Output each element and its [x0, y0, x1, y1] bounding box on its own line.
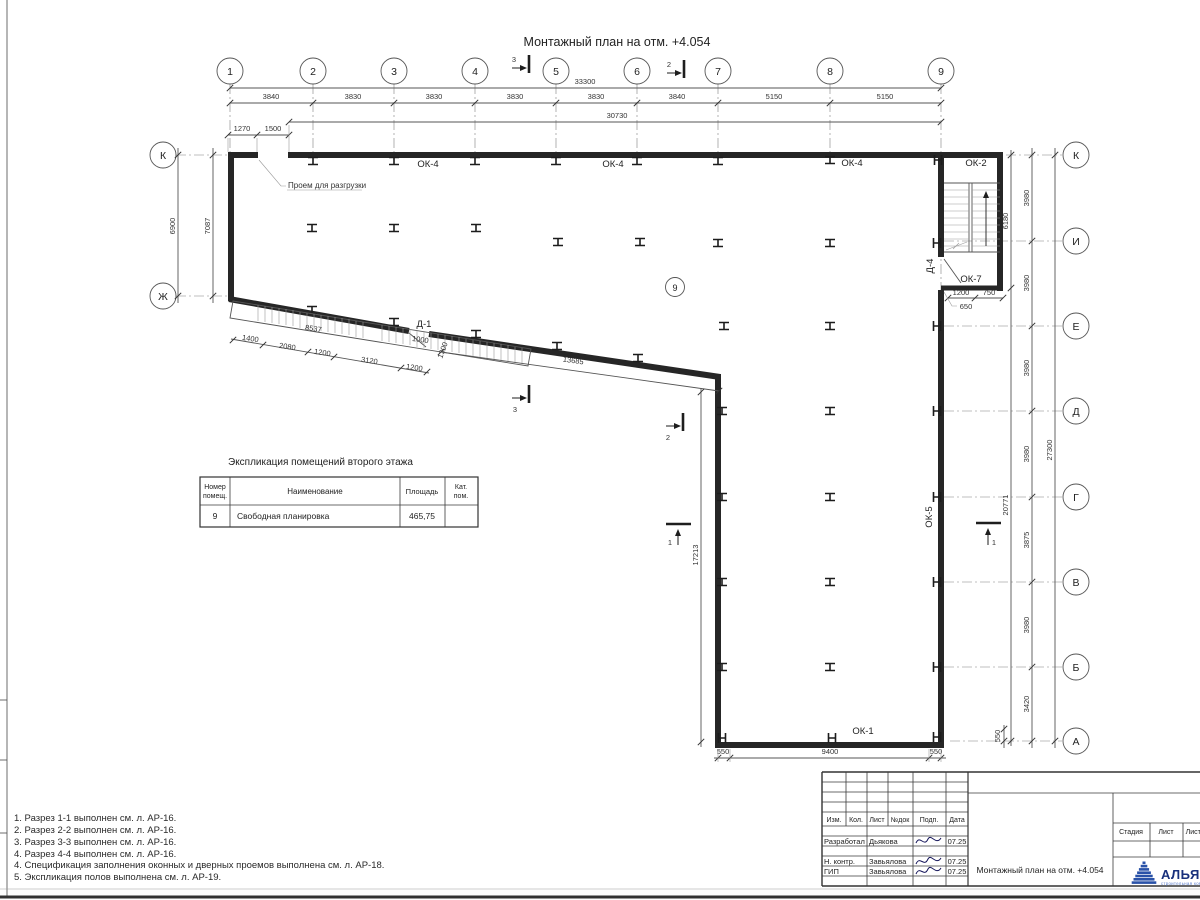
tb-col-podp: Подп. [920, 817, 939, 824]
plan-svg: Монтажный план на отм. +4.054 1 2 3 4 5 … [0, 0, 1200, 900]
section-markers: 3 2 3 2 1 1 [512, 55, 1001, 547]
dim-top-wall: 30730 [607, 111, 628, 120]
window-ok5-label: ОК-5 [924, 506, 935, 527]
dim-seg-8: 5150 [877, 92, 894, 101]
section-3-mid: 3 [513, 405, 517, 414]
left-dimensions: 6900 7087 [168, 148, 216, 303]
grid-row-G: Г [1073, 492, 1079, 504]
window-ok4-label-2: ОК-4 [602, 159, 623, 170]
dim-top-total: 33300 [575, 77, 596, 86]
dim-seg-5: 3830 [588, 92, 605, 101]
tb-date-3: 07.25 [948, 867, 967, 876]
grid-bubbles-right: К И Е Д Г В Б А [1063, 142, 1089, 754]
table-header-num-1: Номер [204, 484, 226, 491]
walls [228, 152, 1003, 748]
dim-bottom-9400: 9400 [822, 747, 839, 756]
dim-left-outer: 6900 [168, 218, 177, 235]
plan-labels: ОК-4 ОК-4 ОК-4 ОК-2 ОК-7 ОК-5 ОК-1 Д-1 Д… [259, 158, 987, 737]
grid-row-E: Е [1072, 321, 1079, 333]
dim-stair-750: 750 [983, 288, 996, 297]
grid-col-7: 7 [715, 66, 721, 78]
grid-col-5: 5 [553, 66, 559, 78]
signature-3 [916, 867, 941, 874]
table-header-num-2: помещ. [203, 493, 227, 500]
room-schedule: Экспликация помещений второго этажа Номе… [200, 457, 478, 527]
tb-col-kol: Кол. [849, 817, 863, 824]
note-2: 2. Разрез 2-2 выполнен см. л. АР-16. [14, 825, 176, 836]
staircase [944, 183, 1000, 252]
tb-name-1: Дьякова [869, 837, 898, 846]
bottom-dimensions: 550 9400 550 [714, 747, 946, 762]
grid-col-6: 6 [634, 66, 640, 78]
grid-row-K-left: К [160, 150, 167, 162]
sheet-frame [0, 0, 1200, 897]
dim-seg-7: 5150 [766, 92, 783, 101]
signature-2 [916, 857, 941, 864]
note-1: 1. Разрез 1-1 выполнен см. л. АР-16. [14, 813, 176, 824]
column-icon [308, 158, 318, 165]
ramp: 8537 [230, 301, 531, 366]
ramp-dimensions: 1400 2080 1200 3120 1200 1000 1300 [230, 333, 450, 375]
window-ok4-label-1: ОК-4 [417, 159, 438, 170]
table-header-cat-1: Кат. [455, 484, 467, 491]
grid-col-4: 4 [472, 66, 478, 78]
table-header-name: Наименование [287, 487, 343, 496]
dim-right-inner: 20771 [1001, 495, 1010, 516]
dim-left-inner: 7087 [203, 218, 212, 235]
dim-ramp-length: 8537 [304, 323, 322, 334]
tb-stage: Стадия [1119, 829, 1143, 836]
dim-bottom-550l: 550 [717, 747, 730, 756]
tb-sheets: Листов [1186, 829, 1200, 836]
tb-col-ndok: №док [891, 817, 910, 824]
grid-row-A: А [1072, 736, 1079, 748]
dim-1270: 1270 [234, 124, 251, 133]
dim-ramp-3120: 3120 [360, 355, 378, 366]
table-row-name: Свободная планировка [237, 511, 330, 521]
dim-right-bottom-offset: 550 [993, 730, 1002, 743]
table-header-area: Площадь [406, 487, 439, 496]
drawing-title: Монтажный план на отм. +4.054 [524, 35, 711, 49]
dim-seg-6: 3840 [669, 92, 686, 101]
dim-ramp-1400: 1400 [241, 333, 259, 344]
tb-date-1: 07.25 [948, 837, 967, 846]
tb-role-1: Разработал [824, 837, 865, 846]
dim-seg-3: 3830 [426, 92, 443, 101]
drawing-sheet: Монтажный план на отм. +4.054 1 2 3 4 5 … [0, 0, 1200, 900]
grid-row-K: К [1073, 150, 1080, 162]
dim-door-1000: 1000 [411, 334, 429, 345]
title-block: Изм. Кол. Лист №док Подп. Дата Разработа… [822, 772, 1200, 886]
window-ok2-label: ОК-2 [965, 158, 986, 169]
tb-date-2: 07.25 [948, 857, 967, 866]
tb-col-data: Дата [949, 817, 965, 824]
table-header-cat-2: пом. [454, 493, 468, 500]
window-ok7-label: ОК-7 [960, 274, 981, 285]
top-dimensions: 33300 3840 3830 3830 3830 3830 3840 5150… [225, 77, 944, 152]
note-5: 4. Спецификация заполнения оконных и две… [14, 860, 384, 871]
tb-name-2: Завьялова [869, 857, 907, 866]
inner-dimensions: 13685 17213 [438, 349, 722, 747]
section-1-left: 1 [668, 538, 672, 547]
notes-block: 1. Разрез 1-1 выполнен см. л. АР-16. 2. … [14, 813, 384, 883]
grid-col-1: 1 [227, 66, 233, 78]
grid-row-D: Д [1072, 406, 1079, 418]
section-2-top: 2 [667, 60, 671, 69]
section-2-mid: 2 [666, 433, 670, 442]
dim-seg-1: 3840 [263, 92, 280, 101]
door-d1-label: Д-1 [417, 319, 432, 330]
dim-ramp-2080: 2080 [278, 341, 296, 352]
dim-bottom-550r: 550 [930, 747, 943, 756]
section-1-right: 1 [992, 538, 996, 547]
tb-name-3: Завьялова [869, 867, 907, 876]
window-ok1-label: ОК-1 [852, 726, 873, 737]
dim-seg-4: 3830 [507, 92, 524, 101]
tb-sheet: Лист [1158, 829, 1174, 836]
dim-r-seg-5: 3875 [1022, 532, 1031, 549]
company-subtitle: строительная компания [1161, 881, 1200, 886]
dim-r-seg-4: 3980 [1022, 446, 1031, 463]
tb-col-izm: Изм. [827, 817, 842, 824]
dim-seg-2: 3830 [345, 92, 362, 101]
grid-col-9: 9 [938, 66, 944, 78]
grid-row-V: В [1072, 577, 1079, 589]
opening-leader [259, 160, 286, 186]
door-d4-leaf [944, 259, 961, 283]
dim-ramp-1200a: 1200 [313, 347, 331, 358]
dim-stair-650: 650 [960, 302, 973, 311]
door-d4-label: Д-4 [925, 259, 936, 274]
note-4: 4. Разрез 4-4 выполнен см. л. АР-16. [14, 849, 176, 860]
table-row-area: 465,75 [409, 511, 435, 521]
tb-col-list: Лист [869, 817, 885, 824]
dim-vertical: 17213 [691, 545, 700, 566]
room-number: 9 [672, 283, 677, 293]
grid-row-Zh-left: Ж [158, 291, 168, 303]
dim-r-seg-7: 3420 [1022, 696, 1031, 713]
room-schedule-title: Экспликация помещений второго этажа [228, 457, 413, 468]
dim-1500: 1500 [265, 124, 282, 133]
note-3: 3. Разрез 3-3 выполнен см. л. АР-16. [14, 837, 176, 848]
grid-col-3: 3 [391, 66, 397, 78]
dim-r-seg-2: 3980 [1022, 275, 1031, 292]
grid-col-2: 2 [310, 66, 316, 78]
section-3-top: 3 [512, 55, 516, 64]
tb-doc-title: Монтажный план на отм. +4.054 [976, 865, 1103, 875]
stair-dimensions: 1200 750 650 [944, 288, 1006, 311]
company-logo-icon [1132, 862, 1157, 884]
dim-stair-1200: 1200 [953, 288, 970, 297]
dim-r-seg-6: 3980 [1022, 617, 1031, 634]
dim-ramp-1200b: 1200 [405, 362, 423, 373]
dim-right-total: 27300 [1045, 440, 1054, 461]
table-row-num: 9 [213, 511, 218, 521]
grid-col-8: 8 [827, 66, 833, 78]
signature-1 [916, 837, 941, 843]
grid-row-I: И [1072, 236, 1080, 248]
company-name: АЛЬЯНС [1161, 867, 1200, 882]
dim-r-seg-3: 3980 [1022, 360, 1031, 377]
dim-r-seg-1: 3980 [1022, 190, 1031, 207]
dim-diagonal: 13685 [562, 355, 584, 367]
tb-role-3: ГИП [824, 867, 839, 876]
note-6: 5. Экспликация полов выполнена см. л. АР… [14, 872, 221, 883]
columns [307, 155, 942, 743]
grid-row-B: Б [1073, 662, 1080, 674]
opening-note: Проем для разгрузки [288, 181, 366, 190]
tb-role-2: Н. контр. [824, 857, 855, 866]
window-ok4-label-3: ОК-4 [841, 158, 862, 169]
